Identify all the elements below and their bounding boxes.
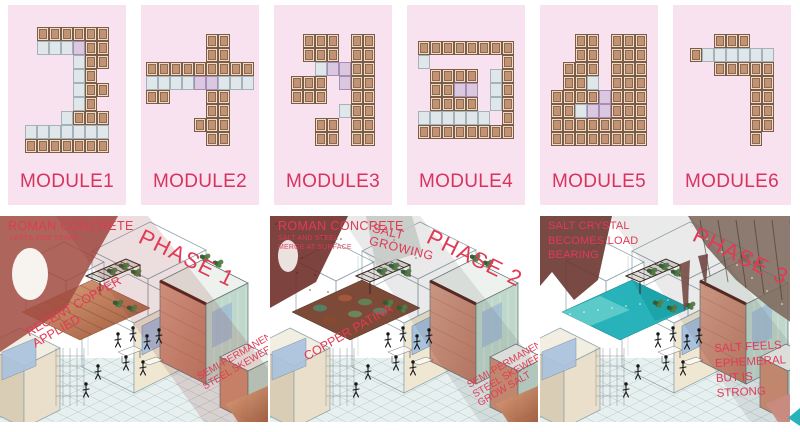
- phase-panel-2: ROMAN CONCRETE SALT AND STEEL MERGE AT S…: [270, 216, 538, 422]
- module-label-2: MODULE2: [141, 171, 259, 193]
- floor-plan-module-6: [673, 11, 791, 169]
- module-panel-1: MODULE1: [8, 5, 126, 205]
- note-material-sub: LASTS 2000 YEARS: [10, 235, 78, 242]
- floor-plan-module-5: [540, 11, 658, 169]
- teal-corner-shape: [788, 408, 800, 426]
- module-panel-5: MODULE5: [540, 5, 658, 205]
- module-panel-3: MODULE3: [274, 5, 392, 205]
- floor-plan-module-3: [274, 11, 392, 169]
- note-material-sub2: MERGE AT SURFACE: [278, 244, 352, 251]
- note-material-sub1: SALT AND STEEL: [278, 235, 338, 242]
- note-salt-ephemeral: SALT FEELS EPHEMERAL BUT IS STRONG: [714, 338, 788, 402]
- floor-plan-module-4: [407, 11, 525, 169]
- phase-panel-3: SALT CRYSTAL BECOMES LOAD BEARING PHASE …: [540, 216, 790, 422]
- module-label-3: MODULE3: [274, 171, 392, 193]
- phase-panel-1: ROMAN CONCRETE LASTS 2000 YEARS PHASE 1 …: [0, 216, 268, 422]
- module-panel-2: MODULE2: [141, 5, 259, 205]
- module-label-1: MODULE1: [8, 171, 126, 193]
- module-phasing-board: MODULE1 MODULE2 MODULE3 MODULE4 MODULE5 …: [0, 0, 800, 432]
- floor-plan-module-2: [141, 11, 259, 169]
- module-panel-4: MODULE4: [407, 5, 525, 205]
- note-material-title: ROMAN CONCRETE: [8, 219, 134, 233]
- module-label-4: MODULE4: [407, 171, 525, 193]
- module-label-6: MODULE6: [673, 171, 791, 193]
- module-panel-6: MODULE6: [673, 5, 791, 205]
- floor-plan-module-1: [8, 11, 126, 169]
- module-label-5: MODULE5: [540, 171, 658, 193]
- note-salt-crystal: SALT CRYSTAL BECOMES LOAD BEARING: [548, 219, 638, 263]
